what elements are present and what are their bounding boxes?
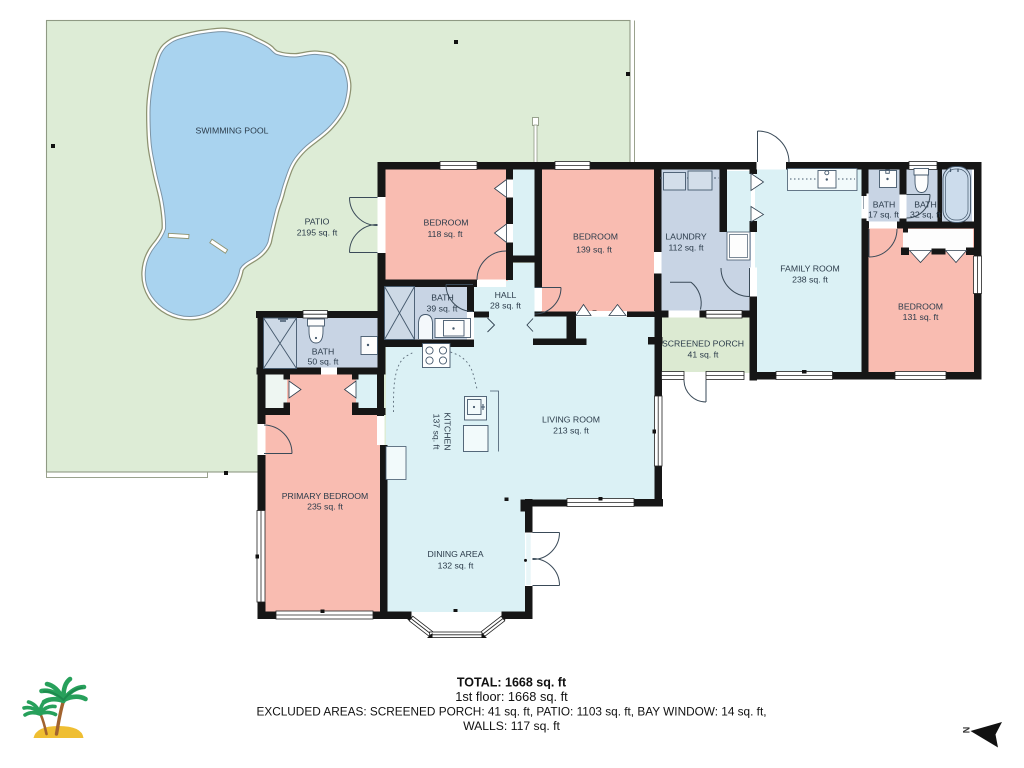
svg-text:32 sq. ft: 32 sq. ft bbox=[910, 210, 941, 220]
svg-text:SCREENED PORCH: SCREENED PORCH bbox=[662, 339, 744, 349]
svg-text:BEDROOM: BEDROOM bbox=[898, 302, 943, 312]
svg-text:LIVING ROOM: LIVING ROOM bbox=[542, 415, 600, 425]
svg-text:WALLS: 117 sq. ft: WALLS: 117 sq. ft bbox=[463, 719, 560, 733]
svg-text:BEDROOM: BEDROOM bbox=[573, 232, 618, 242]
svg-text:238 sq. ft: 238 sq. ft bbox=[792, 275, 828, 285]
svg-text:SWIMMING POOL: SWIMMING POOL bbox=[196, 126, 269, 136]
svg-text:BATH: BATH bbox=[873, 200, 896, 210]
svg-text:17 sq. ft: 17 sq. ft bbox=[868, 210, 899, 220]
svg-text:DINING AREA: DINING AREA bbox=[428, 549, 484, 559]
svg-text:HALL: HALL bbox=[495, 290, 517, 300]
svg-text:PATIO: PATIO bbox=[305, 217, 330, 227]
svg-text:112 sq. ft: 112 sq. ft bbox=[668, 243, 704, 253]
svg-text:PRIMARY BEDROOM: PRIMARY BEDROOM bbox=[282, 491, 369, 501]
svg-text:137 sq. ft: 137 sq. ft bbox=[432, 414, 442, 450]
svg-text:131 sq. ft: 131 sq. ft bbox=[903, 312, 939, 322]
svg-text:41 sq. ft: 41 sq. ft bbox=[688, 350, 719, 360]
svg-text:2195 sq. ft: 2195 sq. ft bbox=[297, 228, 338, 238]
svg-text:BATH: BATH bbox=[312, 347, 335, 357]
svg-text:FAMILY ROOM: FAMILY ROOM bbox=[780, 264, 840, 274]
svg-text:KITCHEN: KITCHEN bbox=[443, 412, 453, 450]
svg-text:LAUNDRY: LAUNDRY bbox=[665, 232, 707, 242]
svg-text:118 sq. ft: 118 sq. ft bbox=[427, 229, 463, 239]
svg-text:BEDROOM: BEDROOM bbox=[424, 218, 469, 228]
svg-text:28 sq. ft: 28 sq. ft bbox=[490, 301, 521, 311]
svg-text:BATH: BATH bbox=[914, 200, 937, 210]
svg-text:139 sq. ft: 139 sq. ft bbox=[576, 245, 612, 255]
svg-text:TOTAL: 1668 sq. ft: TOTAL: 1668 sq. ft bbox=[457, 676, 567, 690]
svg-text:213 sq. ft: 213 sq. ft bbox=[553, 426, 589, 436]
svg-text:BATH: BATH bbox=[431, 293, 454, 303]
svg-text:132 sq. ft: 132 sq. ft bbox=[438, 561, 474, 571]
svg-text:1st floor: 1668 sq. ft: 1st floor: 1668 sq. ft bbox=[455, 689, 568, 704]
svg-text:50 sq. ft: 50 sq. ft bbox=[308, 357, 339, 367]
svg-text:EXCLUDED AREAS: SCREENED PORCH: EXCLUDED AREAS: SCREENED PORCH: 41 sq. f… bbox=[256, 705, 766, 719]
svg-text:235 sq. ft: 235 sq. ft bbox=[307, 502, 343, 512]
svg-text:N: N bbox=[961, 727, 971, 734]
svg-text:39 sq. ft: 39 sq. ft bbox=[427, 304, 458, 314]
